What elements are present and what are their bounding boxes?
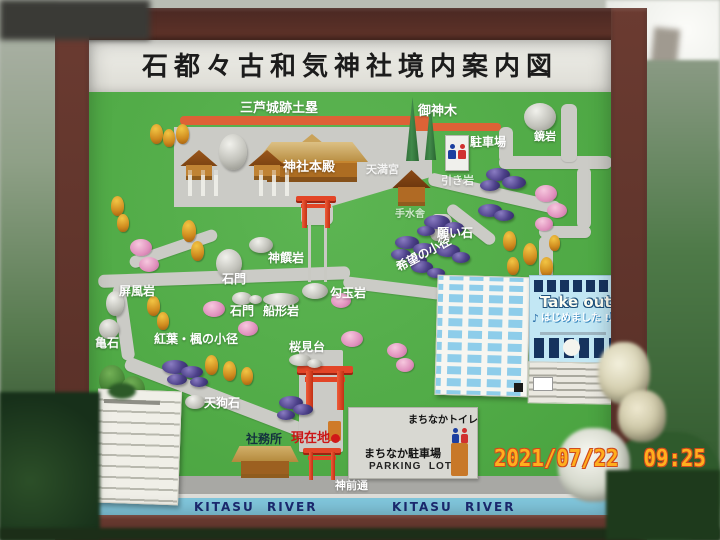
sakuramidai-rock <box>307 359 322 368</box>
tenmangu-building <box>395 170 428 206</box>
takeout-poster-divider <box>540 332 606 335</box>
roof <box>248 150 285 166</box>
label-shinzendori: 神前通 <box>335 480 368 491</box>
autumn-tree <box>241 367 253 385</box>
roof <box>180 150 217 166</box>
qr-code <box>514 383 523 392</box>
bottom-right-dark-leaves <box>606 470 720 540</box>
banner-flag <box>214 175 218 196</box>
autumn-tree <box>111 196 124 216</box>
paper-notice <box>94 389 182 506</box>
label-hikiiwa: 引き岩 <box>441 175 474 186</box>
river-label-left: KITASU RIVER <box>194 501 317 513</box>
hydrangea-bush <box>417 226 435 236</box>
restroom-woman-icon <box>458 144 466 160</box>
banner-flag <box>188 175 192 196</box>
takeout-poster-subtitle: はじめました !! <box>541 314 614 324</box>
autumn-tree <box>523 243 537 265</box>
bottom-left-leaves <box>0 392 100 540</box>
autumn-tree <box>507 257 519 275</box>
label-magatamaiwa: 勾玉岩 <box>330 287 366 299</box>
hydrangea-bush <box>293 404 313 415</box>
banner-flag <box>285 175 289 196</box>
autumn-tree <box>117 214 129 232</box>
hydrangea-bush <box>190 377 208 387</box>
label-parking-lot-en: PARKING LOT <box>369 462 452 472</box>
label-shinseniwa: 神饌岩 <box>268 252 304 264</box>
label-goshinboku: 御神木 <box>418 105 457 118</box>
label-momiji-no-komichi: 紅葉・楓の小径 <box>154 333 238 345</box>
label-genzaichi: 現在地 <box>291 432 330 445</box>
toilet-woman-icon <box>461 428 468 442</box>
label-tenguseki: 天狗石 <box>204 397 240 409</box>
label-byobuiwa: 屏風岩 <box>119 285 155 297</box>
path <box>577 167 591 229</box>
banner-flag <box>259 175 263 196</box>
sakura-tree <box>535 185 557 202</box>
label-funagataiwa: 船形岩 <box>263 305 299 317</box>
plaza-rock <box>219 134 247 170</box>
roof <box>231 446 298 462</box>
sakura-tree <box>130 239 152 256</box>
sakura-tree <box>547 203 567 218</box>
autumn-tree <box>163 129 175 147</box>
autumn-tree <box>503 231 516 251</box>
autumn-tree <box>191 241 204 261</box>
banner-flag <box>272 175 276 196</box>
hydrangea-bush <box>480 180 500 191</box>
building-body <box>241 461 290 478</box>
leaf-over-paper <box>108 383 136 399</box>
label-kagamiiwa: 鏡岩 <box>534 131 556 142</box>
autumn-tree <box>549 235 560 251</box>
label-shamusho: 社務所 <box>246 433 282 445</box>
hydrangea-bush <box>502 176 526 189</box>
sakura-tree <box>238 321 258 336</box>
poster-legend-minibox <box>533 377 553 391</box>
path <box>561 104 577 162</box>
banner-flag <box>201 175 205 196</box>
kagamiiwa-rock <box>524 103 556 131</box>
sakura-tree <box>341 331 363 347</box>
autumn-tree <box>205 355 218 375</box>
label-tenmangu: 天満宮 <box>366 164 399 175</box>
stone-stairs <box>308 222 327 282</box>
autumn-tree <box>157 312 169 330</box>
takeout-poster-title: Take out <box>540 295 612 310</box>
autumn-tree <box>540 257 553 277</box>
genzaichi-dot <box>331 434 340 443</box>
shamusho-building <box>236 446 294 482</box>
river-label-right: KITASU RIVER <box>392 501 515 513</box>
hydrangea-bush <box>277 410 295 420</box>
goshinboku-bar <box>413 123 501 131</box>
building-body <box>254 165 281 180</box>
autumn-tree <box>176 124 189 144</box>
label-temizuya: 手水舎 <box>395 210 425 220</box>
sakura-tree <box>396 358 414 372</box>
torii-gate-lower <box>306 448 338 480</box>
sakura-tree <box>203 301 225 317</box>
autumn-tree <box>182 220 196 242</box>
label-honden: 神社本殿 <box>283 161 335 174</box>
path <box>499 156 612 169</box>
hydrangea-flower-cream <box>618 390 666 442</box>
label-sekimon-lower: 石門 <box>230 305 254 317</box>
top-left-shadow <box>0 0 150 40</box>
takeout-poster-food-strip <box>534 280 612 292</box>
hydrangea-bush <box>167 374 187 385</box>
sakura-tree <box>387 343 407 358</box>
hydrangea-bush <box>494 210 514 221</box>
dorui-bar <box>180 116 430 125</box>
board-title: 石都々古和気神社境内案内図 <box>89 40 611 92</box>
label-machinaka-parking: まちなか駐車場 <box>364 448 441 459</box>
takeout-list-poster <box>434 275 530 397</box>
toilet-man-icon <box>452 428 459 442</box>
autumn-tree <box>223 361 236 381</box>
building-body <box>398 187 426 206</box>
sakura-tree <box>139 257 159 272</box>
label-dorui: 三芦城跡土塁 <box>240 102 318 115</box>
torii-gate-upper <box>299 196 333 228</box>
autumn-tree <box>150 124 163 144</box>
takeout-poster-dish <box>563 339 580 356</box>
torii-gate-main <box>302 366 348 410</box>
autumn-tree <box>147 296 160 316</box>
label-machinaka-toilet: まちなかトイレ <box>408 416 478 426</box>
label-parking: 駐車場 <box>470 136 506 148</box>
sakura-tree <box>535 217 553 231</box>
toilet-door <box>451 443 468 476</box>
photo-of-shrine-map-sign: 石都々古和気神社境内案内図 KITASU RIVER KITASU RIVER <box>0 0 720 540</box>
small-shrine-building <box>251 150 283 180</box>
magatamaiwa-rock <box>302 283 328 299</box>
tenguseki-rock <box>185 395 205 409</box>
label-kameishi: 亀石 <box>95 337 119 349</box>
camera-timestamp: 2021/07/22 09:25 <box>494 446 706 472</box>
label-sakuramidai: 桜見台 <box>289 341 325 353</box>
hydrangea-bush <box>452 252 470 263</box>
restroom-man-icon <box>448 144 456 160</box>
sekimon-rock <box>249 295 262 304</box>
music-note-icon: ♪ <box>532 313 539 324</box>
label-sekimon-upper: 石門 <box>222 273 246 285</box>
